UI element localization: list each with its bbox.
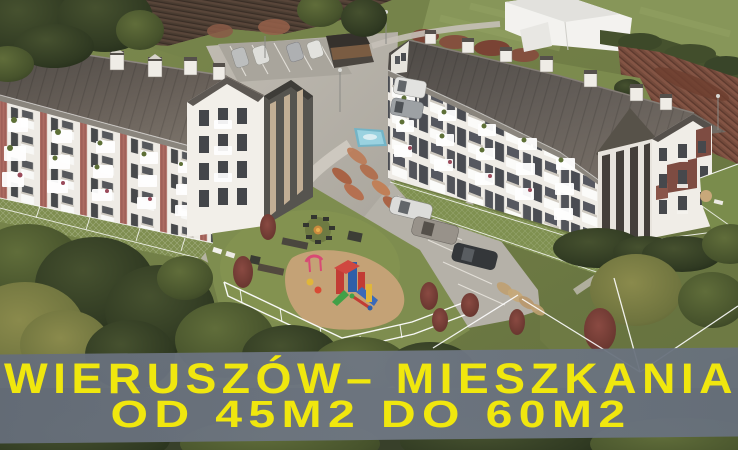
svg-text:OD 45M2 DO 60M2: OD 45M2 DO 60M2 (111, 394, 632, 436)
